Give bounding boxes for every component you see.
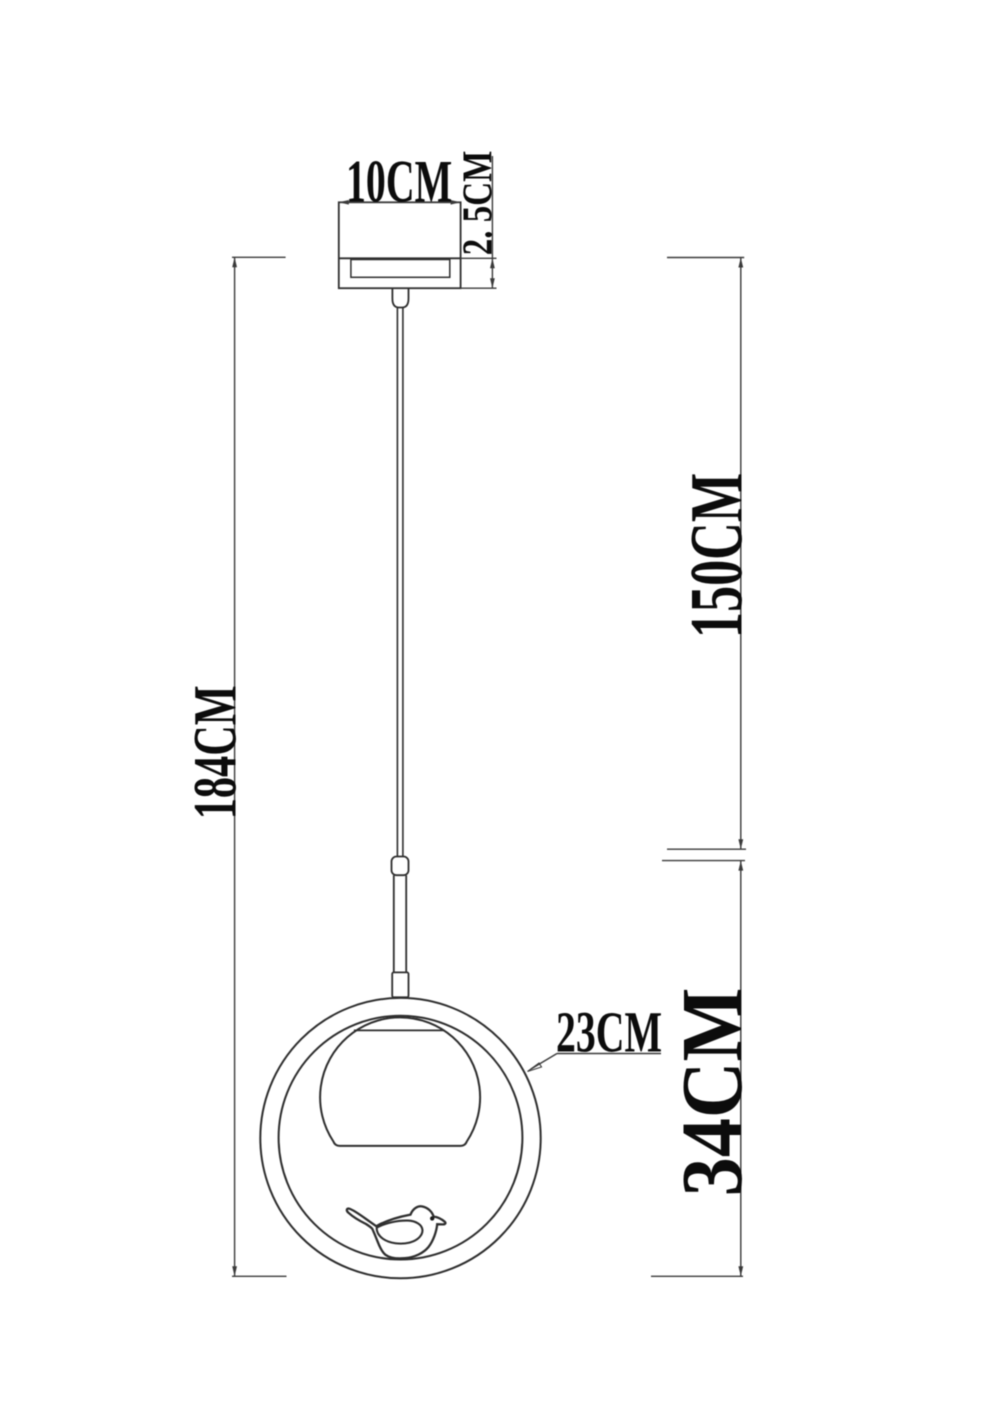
svg-text:10CM: 10CM	[346, 150, 452, 216]
svg-text:23CM: 23CM	[556, 1000, 662, 1064]
svg-text:34CM: 34CM	[663, 988, 760, 1197]
svg-text:150CM: 150CM	[674, 473, 758, 638]
svg-text:2. 5CM: 2. 5CM	[455, 151, 502, 256]
svg-text:184CM: 184CM	[182, 685, 249, 819]
